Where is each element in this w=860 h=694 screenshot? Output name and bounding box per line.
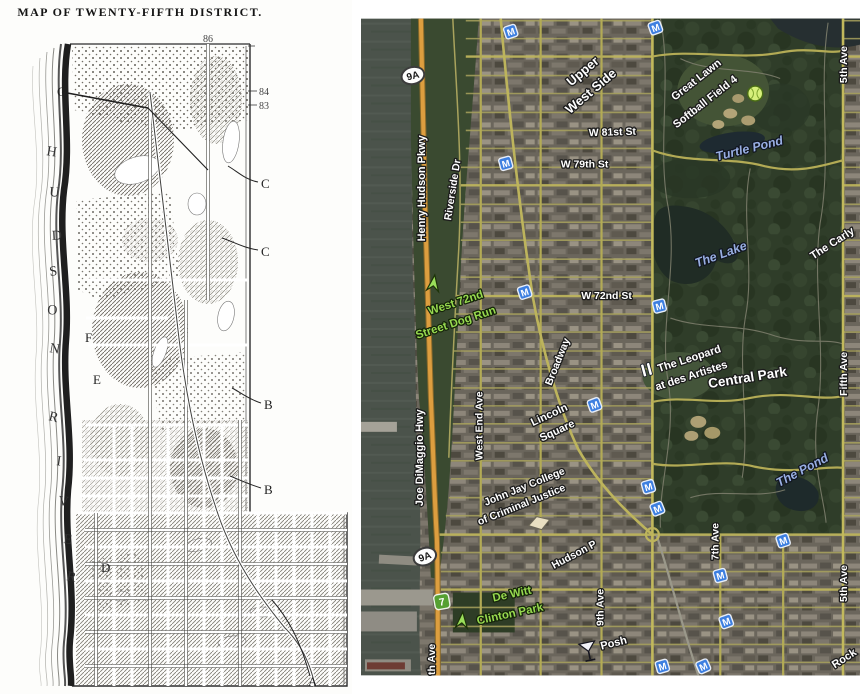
- subway-m-icon[interactable]: [652, 299, 667, 314]
- label-w72nd: W 72nd St: [581, 291, 632, 302]
- letter-e: E: [93, 372, 101, 387]
- subway-m-icon[interactable]: [713, 568, 728, 584]
- label-west-end-ave: West End Ave: [475, 391, 486, 460]
- label-5th-ave-bottom: 5th Ave: [839, 565, 850, 602]
- letter-f: F: [85, 330, 92, 345]
- hudson-letter: O: [47, 303, 59, 319]
- label-w79th: W 79th St: [561, 159, 609, 170]
- label-9th-ave: 9th Ave: [596, 589, 607, 626]
- label-12th-ave-partial: th Ave: [427, 644, 438, 675]
- letter-d: D: [101, 560, 110, 575]
- number-84: 84: [259, 87, 269, 98]
- label-w81st: W 81st St: [589, 127, 637, 140]
- letter-c2: C: [261, 244, 270, 259]
- engraved-map[interactable]: MAP OF TWENTY-FIFTH DISTRICT.: [0, 0, 352, 694]
- label-joe-dimaggio-hwy: Joe DiMaggio Hwy: [414, 408, 426, 506]
- letter-g: G: [57, 84, 66, 99]
- line-7-marker[interactable]: 7: [433, 593, 450, 610]
- letter-c1: C: [261, 176, 270, 191]
- hudson-letter: U: [49, 185, 61, 201]
- subway-m-icon[interactable]: [498, 156, 513, 172]
- letter-b2: B: [264, 482, 273, 497]
- screenshot-canvas: MAP OF TWENTY-FIFTH DISTRICT.: [0, 0, 860, 694]
- label-fifth-ave: Fifth Ave: [839, 352, 850, 396]
- number-83: 83: [259, 101, 269, 112]
- river-letter: V: [58, 494, 71, 510]
- number-86: 86: [203, 34, 213, 45]
- label-7th-ave: 7th Ave: [710, 523, 721, 560]
- hudson-letter: D: [51, 228, 63, 244]
- satellite-map[interactable]: M: [361, 18, 860, 676]
- letter-a: A: [308, 674, 318, 689]
- map-title: MAP OF TWENTY-FIFTH DISTRICT.: [17, 5, 262, 19]
- letter-b1: B: [264, 397, 273, 412]
- label-5th-ave-top: 5th Ave: [839, 46, 850, 83]
- softball-icon[interactable]: [748, 86, 763, 101]
- label-henry-hudson-pkwy: Henry Hudson Pkwy: [416, 134, 428, 241]
